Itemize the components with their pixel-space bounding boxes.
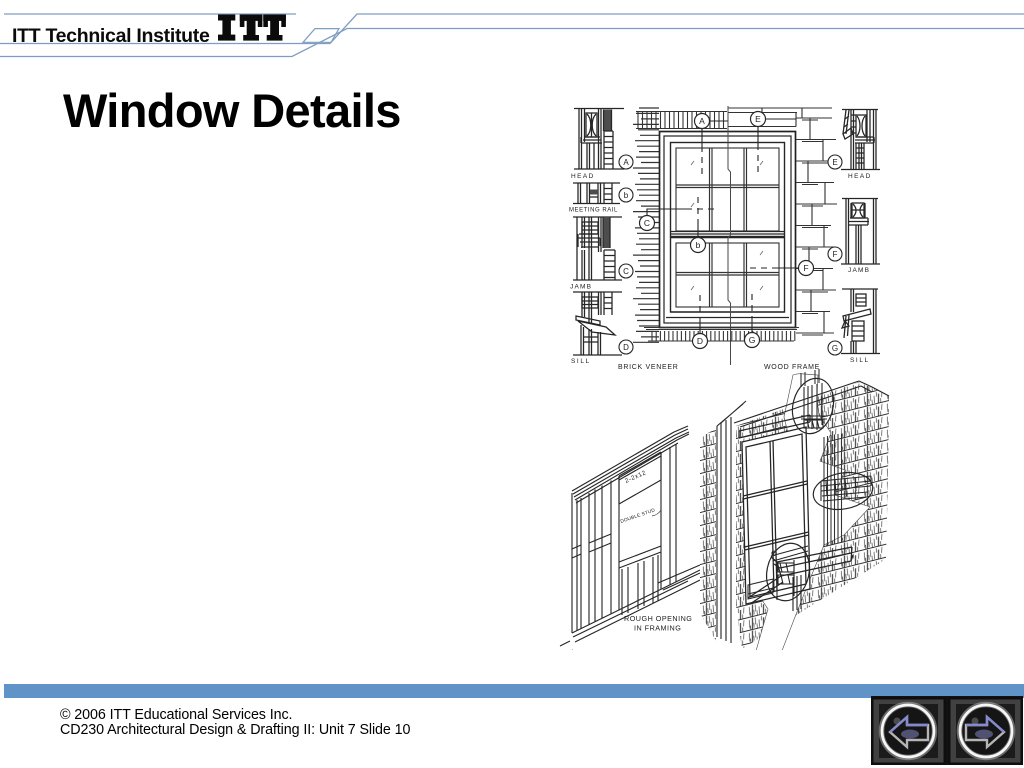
svg-text:SILL: SILL bbox=[850, 357, 870, 364]
svg-text:b: b bbox=[624, 191, 629, 200]
svg-text:SILL: SILL bbox=[571, 358, 591, 365]
svg-text:A: A bbox=[623, 158, 629, 167]
svg-text:ROUGH OPENING: ROUGH OPENING bbox=[624, 614, 692, 623]
svg-text:IN FRAMING: IN FRAMING bbox=[634, 624, 681, 633]
svg-text:JAMB: JAMB bbox=[848, 267, 870, 274]
svg-text:C: C bbox=[623, 267, 629, 276]
svg-text:G: G bbox=[749, 335, 756, 345]
svg-text:D: D bbox=[623, 343, 629, 352]
svg-text:E: E bbox=[832, 158, 837, 167]
svg-text:JAMB: JAMB bbox=[570, 284, 592, 291]
svg-text:WOOD FRAME: WOOD FRAME bbox=[764, 364, 820, 371]
svg-text:D: D bbox=[697, 336, 703, 346]
svg-text:BRICK VENEER: BRICK VENEER bbox=[618, 364, 679, 371]
svg-text:C: C bbox=[644, 218, 650, 228]
svg-text:HEAD: HEAD bbox=[848, 173, 872, 180]
svg-text:b: b bbox=[696, 240, 701, 250]
svg-text:A: A bbox=[699, 116, 705, 126]
svg-text:F: F bbox=[803, 263, 808, 273]
svg-text:E: E bbox=[755, 114, 761, 124]
svg-text:HEAD: HEAD bbox=[571, 173, 595, 180]
svg-text:G: G bbox=[832, 344, 838, 353]
svg-text:F: F bbox=[833, 250, 838, 259]
svg-text:MEETING RAIL: MEETING RAIL bbox=[569, 208, 618, 214]
svg-text:ITT Technical Institute: ITT Technical Institute bbox=[12, 25, 210, 47]
